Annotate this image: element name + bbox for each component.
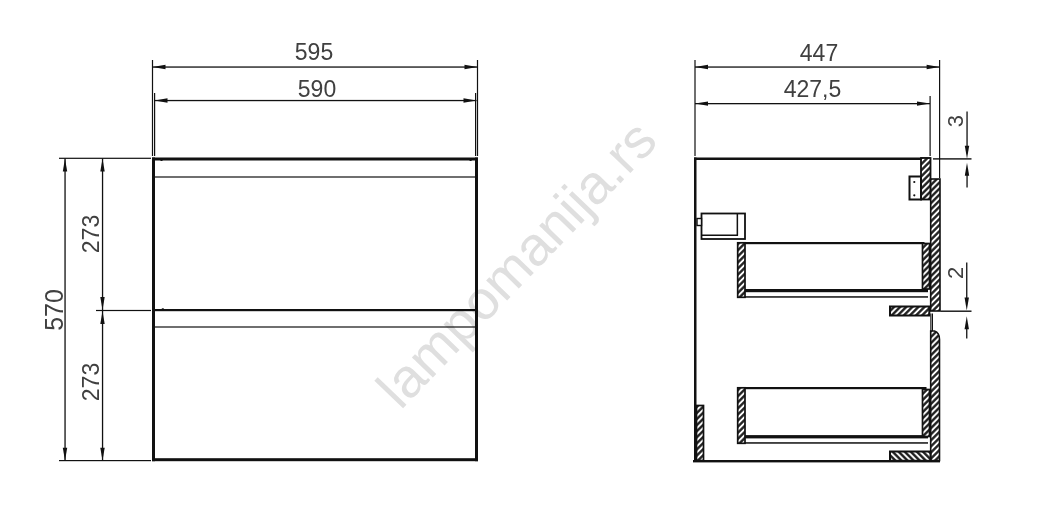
- svg-text:2: 2: [943, 267, 968, 279]
- svg-text:447: 447: [800, 40, 838, 66]
- svg-text:3: 3: [943, 115, 968, 127]
- svg-text:273: 273: [78, 363, 104, 401]
- svg-text:273: 273: [78, 215, 104, 253]
- svg-text:lampomanija.rs: lampomanija.rs: [365, 108, 669, 419]
- svg-text:590: 590: [298, 76, 336, 102]
- svg-text:595: 595: [295, 39, 333, 65]
- svg-text:427,5: 427,5: [784, 76, 842, 102]
- svg-text:570: 570: [40, 289, 68, 331]
